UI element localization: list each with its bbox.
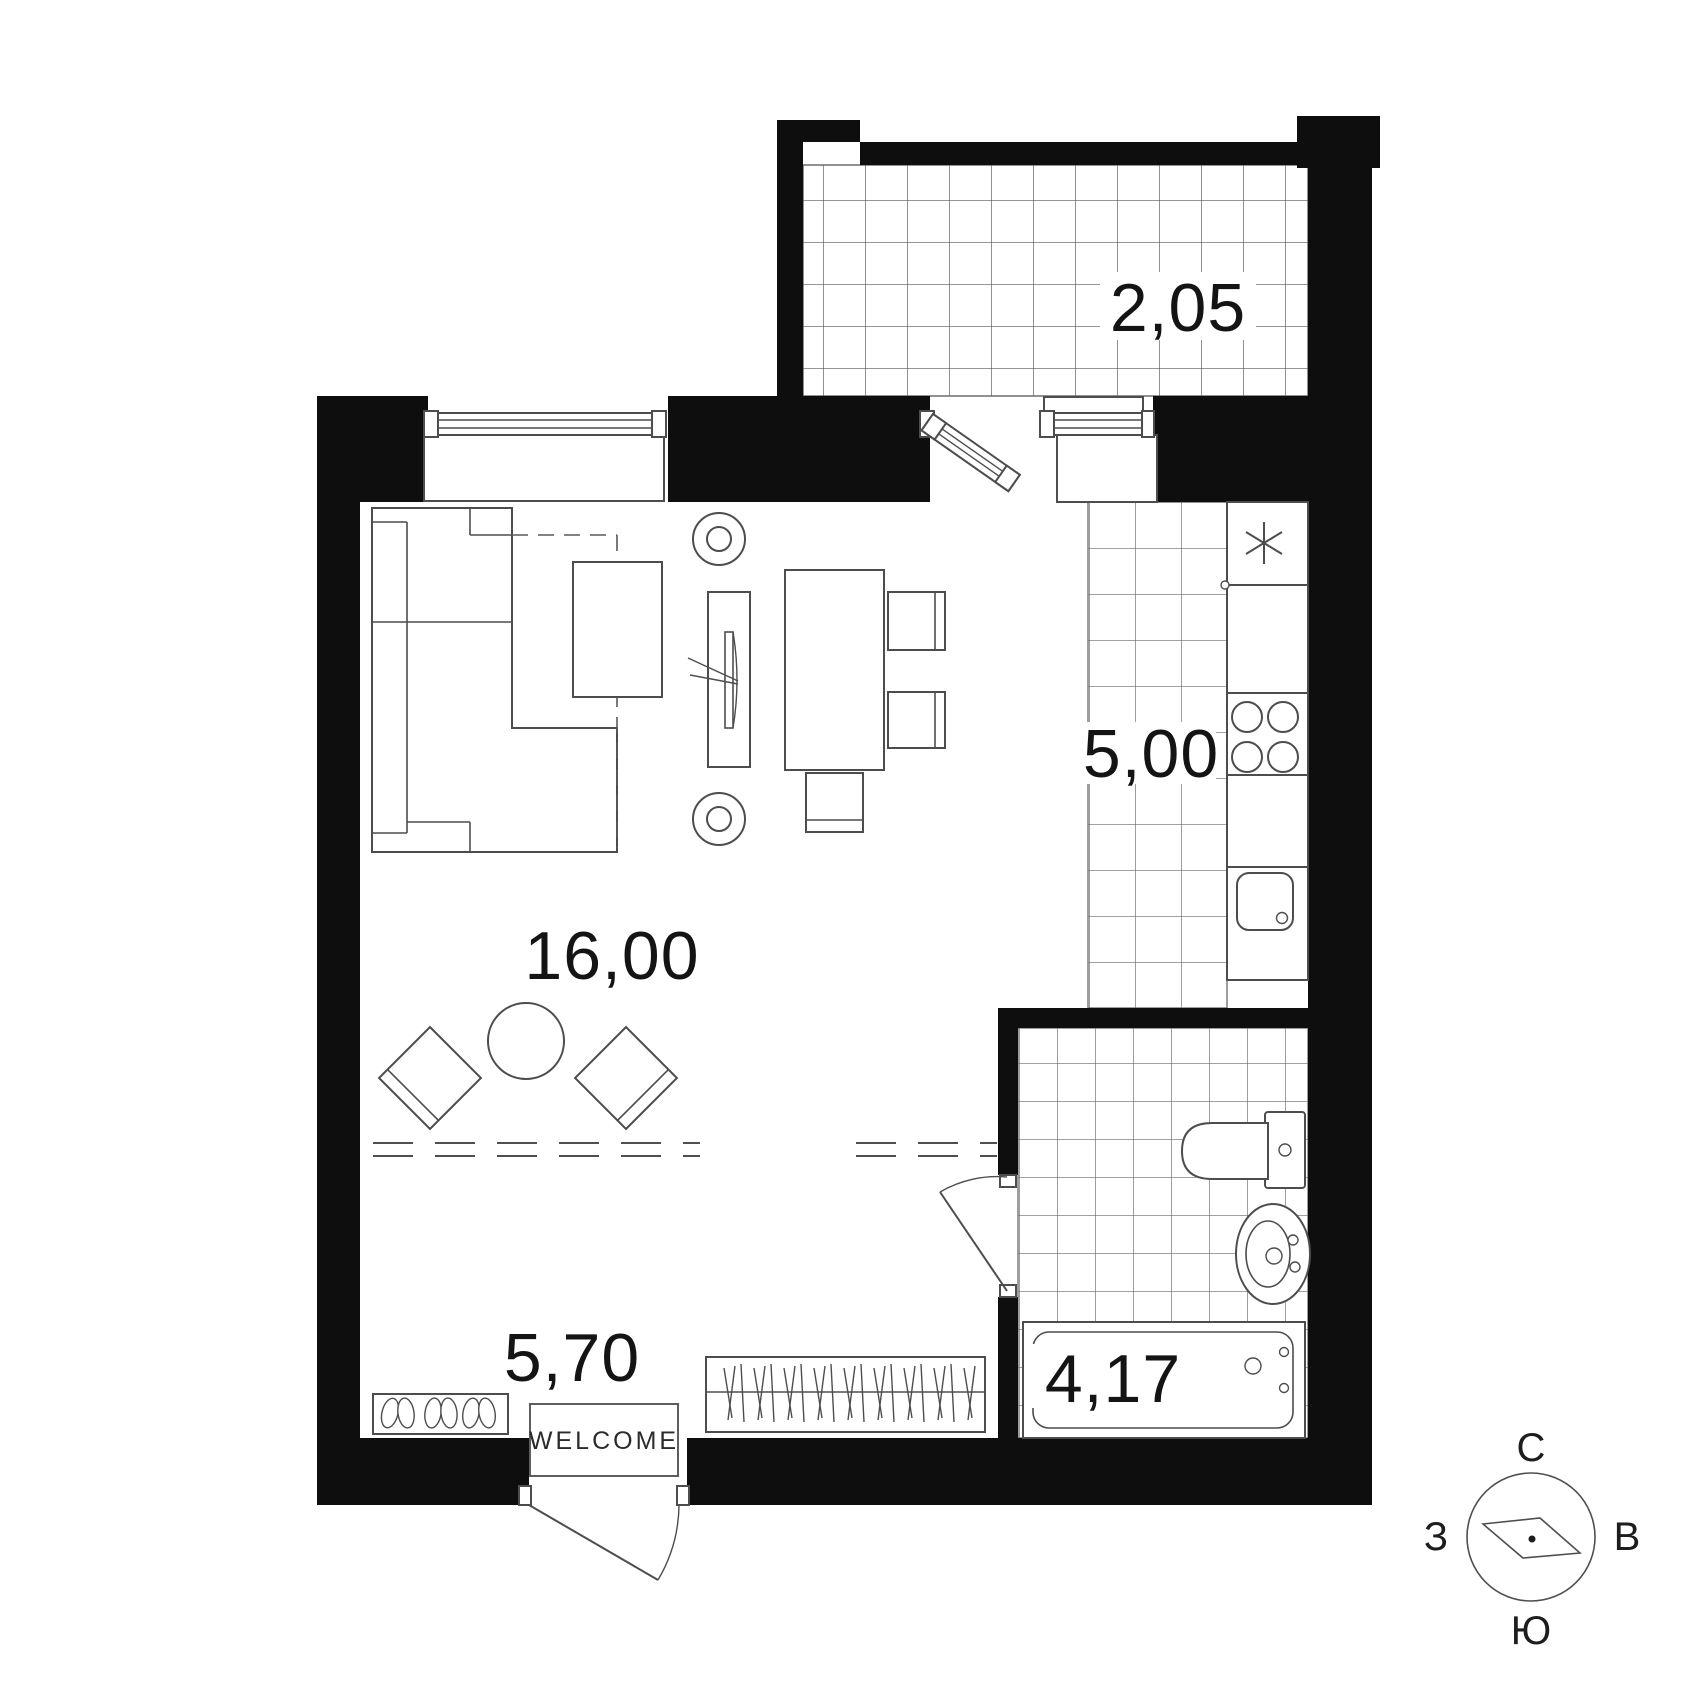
wall-bathroom-top (998, 1008, 1308, 1028)
wall-left (317, 396, 360, 1505)
window-sill (424, 435, 664, 501)
window-jamb (652, 411, 666, 437)
wall-bathroom-left-lower (998, 1297, 1018, 1438)
dining-table (785, 570, 884, 770)
wardrobe (706, 1357, 985, 1432)
door-leaf (940, 1192, 1007, 1291)
room-label-kitchen: 5,00 (1083, 716, 1219, 792)
bathroom-sink (1236, 1204, 1310, 1304)
zoning-dashed-line (373, 1143, 997, 1156)
living-room-furniture (372, 508, 945, 1129)
floor-lamp-inner (707, 807, 731, 831)
door-swing-arc (940, 1177, 1007, 1192)
wall-bathroom-left-upper (998, 1028, 1018, 1175)
door-leaf (529, 1505, 658, 1580)
room-label-living: 16,00 (524, 918, 699, 994)
kitchen-sink-drain (1277, 913, 1288, 924)
floor-plan-page: WELCOME 2,05 5,00 16,00 5,70 4,17 С В Ю … (0, 0, 1700, 1700)
balcony-door (920, 411, 1020, 491)
dining-chair (888, 692, 945, 748)
room-label-hallway: 5,70 (504, 1320, 640, 1396)
wardrobe-hangers (716, 1364, 976, 1422)
window-outer-sill (1044, 397, 1143, 414)
dining-chair (806, 773, 863, 832)
compass-north-label: С (1517, 1426, 1546, 1470)
compass-west-label: З (1424, 1515, 1448, 1559)
wall-bottom-left (317, 1438, 529, 1505)
armchair (575, 1027, 677, 1129)
room-label-bathroom: 4,17 (1045, 1341, 1181, 1417)
wall-bottom-right (687, 1438, 1372, 1505)
welcome-mat-label: WELCOME (529, 1427, 679, 1455)
floor-lamp-inner (707, 527, 731, 551)
window-jamb (424, 411, 438, 437)
wall-top-pier-right (1153, 396, 1308, 502)
counter-knob (1221, 581, 1229, 589)
shoe-rack (373, 1394, 508, 1434)
window-sill (1057, 435, 1157, 502)
bathroom-door (940, 1175, 1016, 1297)
door-jamb (677, 1486, 689, 1505)
compass-center-dot (1529, 1536, 1536, 1543)
room-label-balcony: 2,05 (1110, 270, 1246, 346)
wall-right (1308, 160, 1372, 1505)
door-jamb (519, 1486, 531, 1505)
round-side-table (488, 1003, 564, 1079)
wall-balcony-left (777, 120, 803, 397)
wall-top-pier-middle (668, 396, 930, 502)
window-jamb (1142, 411, 1154, 437)
window-frame (1054, 413, 1142, 435)
compass-south-label: Ю (1511, 1609, 1551, 1653)
wall-balcony-top (860, 142, 1297, 165)
tv-screen (725, 632, 733, 728)
floor-plan: WELCOME 2,05 5,00 16,00 5,70 4,17 С В Ю … (0, 0, 1700, 1700)
door-swing-arc (658, 1505, 679, 1580)
entry-door (519, 1486, 689, 1580)
welcome-mat: WELCOME (529, 1404, 679, 1476)
compass-east-label: В (1614, 1515, 1641, 1559)
dining-chair (888, 592, 945, 650)
coffee-table (573, 562, 662, 697)
living-room-window (424, 411, 666, 501)
door-jamb (1000, 1285, 1016, 1297)
window-jamb (1040, 411, 1054, 437)
armchair (379, 1027, 481, 1129)
window-frame (438, 413, 652, 435)
compass: С В Ю З (1424, 1426, 1640, 1653)
toilet (1182, 1112, 1305, 1188)
kitchen-window (1040, 397, 1157, 502)
kitchen-unit (1221, 502, 1308, 980)
